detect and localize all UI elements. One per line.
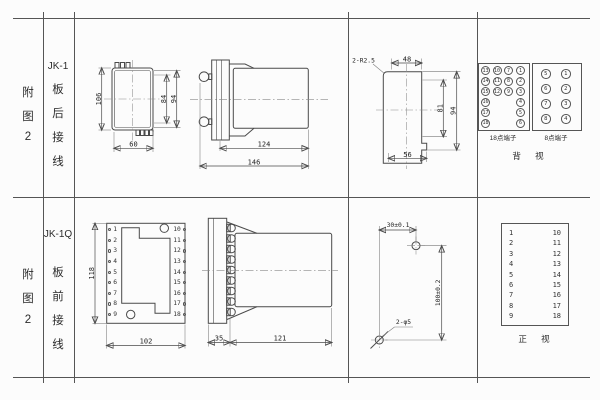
figure-label-char: 2	[25, 314, 31, 326]
front-terminal-right-item: 12	[154, 246, 186, 257]
terminal-dot-icon	[108, 302, 111, 305]
terminal-number: 8	[113, 300, 117, 307]
table-cell: 10	[553, 229, 561, 237]
table-cell: 17	[553, 302, 561, 310]
dim-56: 56	[403, 151, 411, 159]
table-cell: 15	[553, 281, 561, 289]
terminal-dot-icon	[108, 292, 111, 295]
terminal-number: 10	[173, 226, 181, 233]
front-terminal-left-item: 1	[108, 225, 138, 236]
terminal-number: 1	[113, 226, 117, 233]
wiring-label-char: 板	[52, 264, 64, 280]
terminal-dot-icon	[183, 281, 186, 284]
table-cell: 6	[509, 281, 513, 289]
table-cell: 5	[509, 271, 513, 279]
terminal-dot-icon	[108, 313, 111, 316]
relay-outline	[212, 60, 309, 140]
terminal-dot-icon	[183, 260, 186, 263]
figure-label-row1: 附图2	[18, 84, 38, 143]
terminal-number: 2	[113, 237, 117, 244]
table-cell: 4	[509, 260, 513, 268]
grid-line-middle	[13, 197, 590, 198]
terminal-table: 123456789 101112131415161718	[501, 223, 569, 326]
grid-line-bottom	[13, 377, 590, 378]
terminal-circle: 2	[561, 84, 571, 94]
front-terminal-right-item: 11	[154, 235, 186, 246]
dimensions: 30±0.1 100±0.2 2-φ5	[379, 222, 446, 340]
figure-label-row2: 附图2	[18, 266, 38, 326]
jk1-side-view-drawing: 124 146	[188, 52, 336, 172]
terminal-circle: 11	[493, 77, 502, 86]
terminal-number: 11	[173, 237, 181, 244]
model-label-row2: JK-1Q	[40, 229, 76, 240]
table-cell: 3	[509, 250, 513, 258]
dim-84: 84	[160, 95, 168, 103]
terminal-circle: 1	[516, 66, 525, 75]
terminal-number: 4	[113, 258, 117, 265]
front-terminal-left-item: 9	[108, 309, 138, 320]
terminal18-label: 18点端子	[478, 132, 528, 142]
terminal-circle: 2	[516, 77, 525, 86]
terminal-number: 17	[173, 300, 181, 307]
figure-label-char: 附	[22, 266, 34, 282]
wiring-label-char: 板	[52, 81, 64, 97]
figure-label-char: 2	[25, 131, 31, 143]
terminal-circle: 18	[481, 119, 490, 128]
dim-102: 102	[140, 338, 153, 346]
terminal-number: 18	[173, 311, 181, 318]
terminal-dot-icon	[183, 292, 186, 295]
terminal-block-18: 131415161718 101112 789 123456	[478, 63, 530, 131]
t18-col1: 131415161718	[481, 66, 490, 128]
wiring-label-row1: 板后接线	[48, 81, 68, 169]
terminal-number: 9	[113, 311, 117, 318]
terminal-number: 3	[113, 247, 117, 254]
terminal-circle: 17	[481, 108, 490, 117]
dim-106: 106	[95, 93, 103, 106]
table-cell: 2	[509, 239, 513, 247]
grid-line-top	[13, 18, 590, 19]
terminal-dot-icon	[108, 260, 111, 263]
terminal-number: 5	[113, 269, 117, 276]
dim-holes: 2-φ5	[396, 319, 411, 326]
dim-35: 35	[215, 335, 223, 343]
terminal-dot-icon	[183, 313, 186, 316]
grid-line-v2	[74, 12, 75, 383]
terminal-circle: 5	[516, 108, 525, 117]
terminal-circle: 14	[481, 77, 490, 86]
terminal-number: 12	[173, 247, 181, 254]
front-terminal-right-item: 13	[154, 256, 186, 267]
jk1-panel-cutout-drawing: 2-R2.5 48 81 94 56	[352, 50, 474, 172]
terminal-number: 14	[173, 269, 181, 276]
terminal-number: 7	[113, 290, 117, 297]
terminal-circle: 16	[481, 98, 490, 107]
front-terminal-left-item: 5	[108, 267, 138, 278]
terminal8-label: 8点端子	[532, 132, 580, 142]
mounting-holes	[371, 237, 426, 349]
terminal-circle: 12	[493, 87, 502, 96]
dim-124: 124	[258, 141, 271, 149]
dim-60: 60	[129, 141, 137, 149]
terminal-circle: 6	[541, 84, 551, 94]
terminal-circle: 7	[541, 99, 551, 109]
table-cell: 16	[553, 291, 561, 299]
dim-94: 94	[170, 95, 178, 103]
dimensions: 124 146	[200, 83, 308, 169]
terminal-screws	[227, 224, 236, 316]
front-terminal-left-item: 6	[108, 277, 138, 288]
terminal-dot-icon	[108, 271, 111, 274]
wiring-label-char: 后	[52, 105, 64, 121]
front-terminal-right-item: 16	[154, 288, 186, 299]
front-view-label: 正 视	[504, 333, 570, 345]
dim-48: 48	[403, 55, 411, 63]
terminal-dot-icon	[183, 228, 186, 231]
rear-view-label: 背 视	[481, 150, 581, 162]
table-left-column: 123456789	[509, 229, 513, 320]
dimensions: 106 84 94 60	[95, 68, 181, 152]
terminal-number: 16	[173, 290, 181, 297]
dim-121: 121	[274, 335, 287, 343]
table-cell: 14	[553, 271, 561, 279]
terminal-circle: 13	[481, 66, 490, 75]
figure-label-char: 图	[22, 108, 34, 124]
front-terminal-right-item: 18	[154, 309, 186, 320]
front-terminal-left-item: 3	[108, 246, 138, 257]
jk1q-side-view-drawing: 35 121	[200, 208, 340, 353]
t18-col3: 789	[504, 66, 513, 96]
figure-label-char: 附	[22, 84, 34, 100]
front-terminals-left: 1 2 3 4 5 6 7 8 9	[108, 225, 138, 320]
terminal-circle: 10	[493, 66, 502, 75]
table-right-column: 101112131415161718	[553, 229, 561, 320]
terminal-circle: 8	[504, 77, 513, 86]
terminal-circle: 3	[516, 87, 525, 96]
dim-146: 146	[248, 158, 261, 166]
table-cell: 18	[553, 312, 561, 320]
terminal-circle: 5	[541, 69, 551, 79]
table-cell: 1	[509, 229, 513, 237]
terminal-circle: 3	[561, 99, 571, 109]
grid-line-v3	[348, 12, 349, 383]
cutout-outline	[383, 72, 426, 164]
wiring-label-char: 接	[52, 312, 64, 328]
wiring-label-char: 线	[52, 153, 64, 169]
terminal-dot-icon	[183, 249, 186, 252]
t8-right-col: 1234	[561, 69, 571, 124]
wiring-label-char: 前	[52, 288, 64, 304]
terminal-circle: 1	[561, 69, 571, 79]
table-cell: 7	[509, 291, 513, 299]
terminal-number: 6	[113, 279, 117, 286]
dim-81: 81	[436, 104, 444, 112]
wiring-label-char: 接	[52, 129, 64, 145]
terminal-dot-icon	[108, 228, 111, 231]
dim-100: 100±0.2	[435, 279, 442, 306]
wiring-label-row2: 板前接线	[48, 264, 68, 352]
front-terminal-right-item: 17	[154, 299, 186, 310]
front-terminal-left-item: 8	[108, 299, 138, 310]
terminal-block-8: 5678 1234	[532, 63, 582, 131]
terminal-number: 13	[173, 258, 181, 265]
terminal-circle: 6	[516, 119, 525, 128]
model-label-row1: JK-1	[42, 61, 74, 72]
front-terminal-left-item: 7	[108, 288, 138, 299]
t18-col4: 123456	[516, 66, 525, 128]
t8-left-col: 5678	[541, 69, 551, 124]
terminal-dot-icon	[108, 249, 111, 252]
table-cell: 11	[553, 239, 561, 247]
front-terminal-right-item: 15	[154, 277, 186, 288]
terminal-dot-icon	[183, 302, 186, 305]
dim-118: 118	[88, 267, 96, 280]
terminal-circle: 4	[561, 114, 571, 124]
table-cell: 8	[509, 302, 513, 310]
terminal-dot-icon	[183, 239, 186, 242]
table-cell: 12	[553, 250, 561, 258]
terminal-number: 15	[173, 279, 181, 286]
jk1-rear-view-drawing: 106 84 94 60	[92, 52, 192, 170]
terminal-circle: 15	[481, 87, 490, 96]
front-terminal-left-item: 4	[108, 256, 138, 267]
terminal-circle: 4	[516, 98, 525, 107]
front-terminal-right-item: 14	[154, 267, 186, 278]
dim-30: 30±0.1	[387, 222, 410, 229]
terminal-dot-icon	[183, 271, 186, 274]
front-terminals-right: 10 11 12 13 14 15 16 17 18	[154, 225, 186, 320]
figure-label-char: 图	[22, 290, 34, 306]
table-cell: 9	[509, 312, 513, 320]
front-terminal-right-item: 10	[154, 225, 186, 236]
table-cell: 13	[553, 260, 561, 268]
dim-radius: 2-R2.5	[352, 58, 375, 65]
wiring-label-char: 线	[52, 336, 64, 352]
terminal-dot-icon	[108, 281, 111, 284]
drawing-sheet: 附图2 JK-1 板后接线 106 84 94 60	[0, 0, 600, 400]
dim-94-cutout: 94	[450, 107, 458, 115]
terminal-circle: 7	[504, 66, 513, 75]
terminal-circle: 8	[541, 114, 551, 124]
t18-col2: 101112	[493, 66, 502, 96]
jk1q-drilling-plan-drawing: 30±0.1 100±0.2 2-φ5	[355, 208, 473, 363]
front-terminal-left-item: 2	[108, 235, 138, 246]
terminal-dot-icon	[108, 239, 111, 242]
terminal-circle: 9	[504, 87, 513, 96]
